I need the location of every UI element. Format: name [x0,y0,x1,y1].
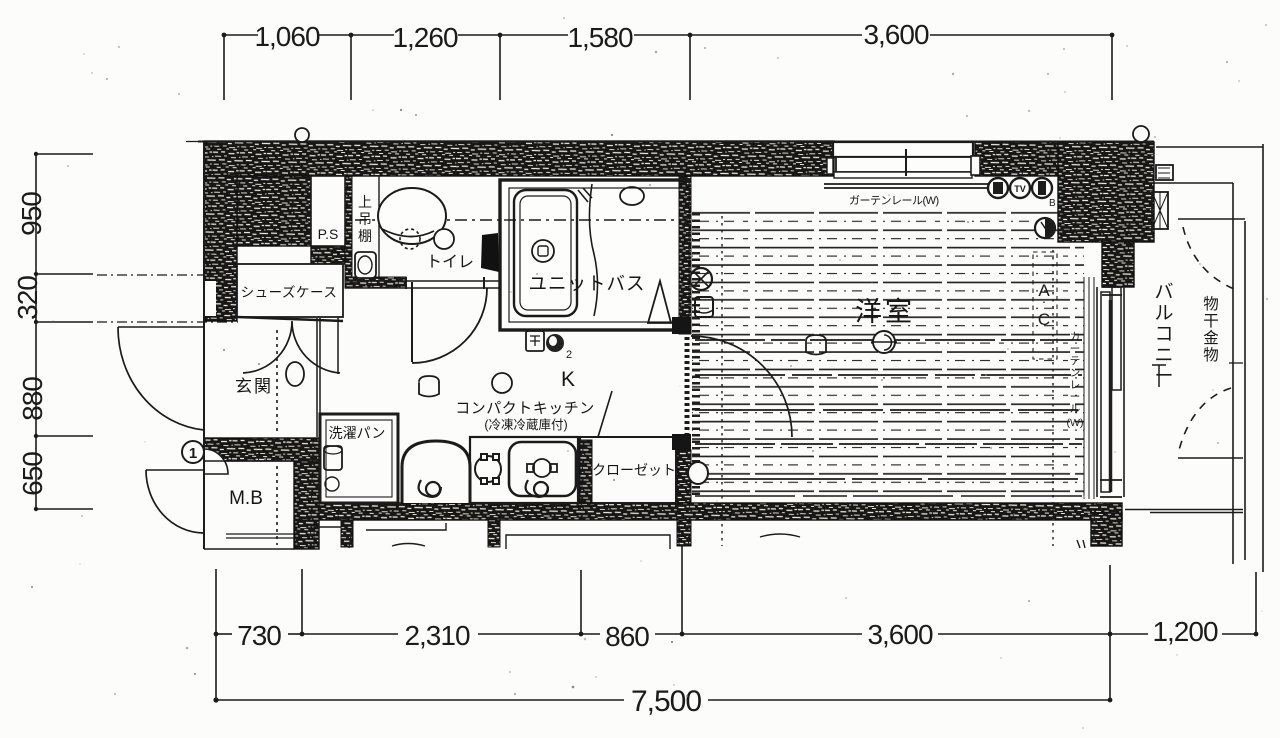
svg-text:洋室: 洋室 [855,297,915,327]
svg-text:吊: 吊 [358,211,372,227]
svg-text:カ: カ [1070,331,1081,343]
svg-text:.: . [1042,290,1046,306]
svg-text:ニ: ニ [1154,345,1173,366]
svg-text:ー: ー [1070,343,1081,355]
svg-text:金: 金 [1203,329,1219,347]
svg-text:上: 上 [358,194,372,210]
svg-text:2: 2 [566,349,572,361]
svg-text:物: 物 [1203,295,1219,313]
svg-text:7,500: 7,500 [631,685,701,718]
svg-text:950: 950 [16,192,47,236]
svg-text:ユニットバス: ユニットバス [528,273,645,294]
svg-text:玄関: 玄関 [235,377,273,396]
svg-text:M.B: M.B [229,488,263,509]
svg-text:ル: ル [1154,303,1173,324]
svg-text:コ: コ [1154,324,1173,345]
svg-text:880: 880 [17,377,48,421]
svg-text:K: K [561,368,575,391]
svg-text:物: 物 [1203,346,1219,364]
svg-text:1: 1 [189,445,197,462]
svg-text:コンパクトキッチン: コンパクトキッチン [455,400,595,417]
svg-text:クローゼット: クローゼット [592,462,676,478]
svg-text:トイレ: トイレ [426,254,474,271]
svg-text:650: 650 [17,452,48,496]
svg-text:干: 干 [1203,313,1219,330]
svg-text:3,600: 3,600 [863,19,928,50]
svg-text:洗濯パン: 洗濯パン [329,425,386,441]
svg-text:(W): (W) [1067,417,1084,429]
svg-text:730: 730 [237,620,281,651]
svg-text:棚: 棚 [358,228,372,244]
svg-text:(冷凍冷蔵庫付): (冷凍冷蔵庫付) [484,417,567,432]
svg-text:バ: バ [1154,282,1173,303]
svg-text:TV: TV [1014,184,1026,194]
svg-text:ー: ー [1154,366,1173,387]
svg-text:レ: レ [1070,379,1081,391]
svg-text:3,600: 3,600 [867,619,932,650]
svg-text:2,310: 2,310 [404,620,469,651]
svg-text:320: 320 [12,276,43,320]
svg-text:ガーテンレール(W): ガーテンレール(W) [849,194,939,207]
svg-text:1,200: 1,200 [1152,616,1217,647]
svg-text:1,060: 1,060 [254,21,319,52]
svg-text:ン: ン [1070,367,1081,379]
svg-text:860: 860 [605,621,649,652]
svg-text:B: B [1049,198,1056,209]
svg-text:シューズケース: シューズケース [241,285,338,300]
svg-text:テ: テ [1070,355,1081,367]
svg-text:ー: ー [1070,391,1081,403]
svg-text:ル: ル [1070,403,1081,415]
svg-text:1,580: 1,580 [567,22,632,53]
svg-text:1,260: 1,260 [392,22,457,53]
svg-text:P.S: P.S [318,226,339,242]
svg-text:C: C [1038,310,1050,329]
